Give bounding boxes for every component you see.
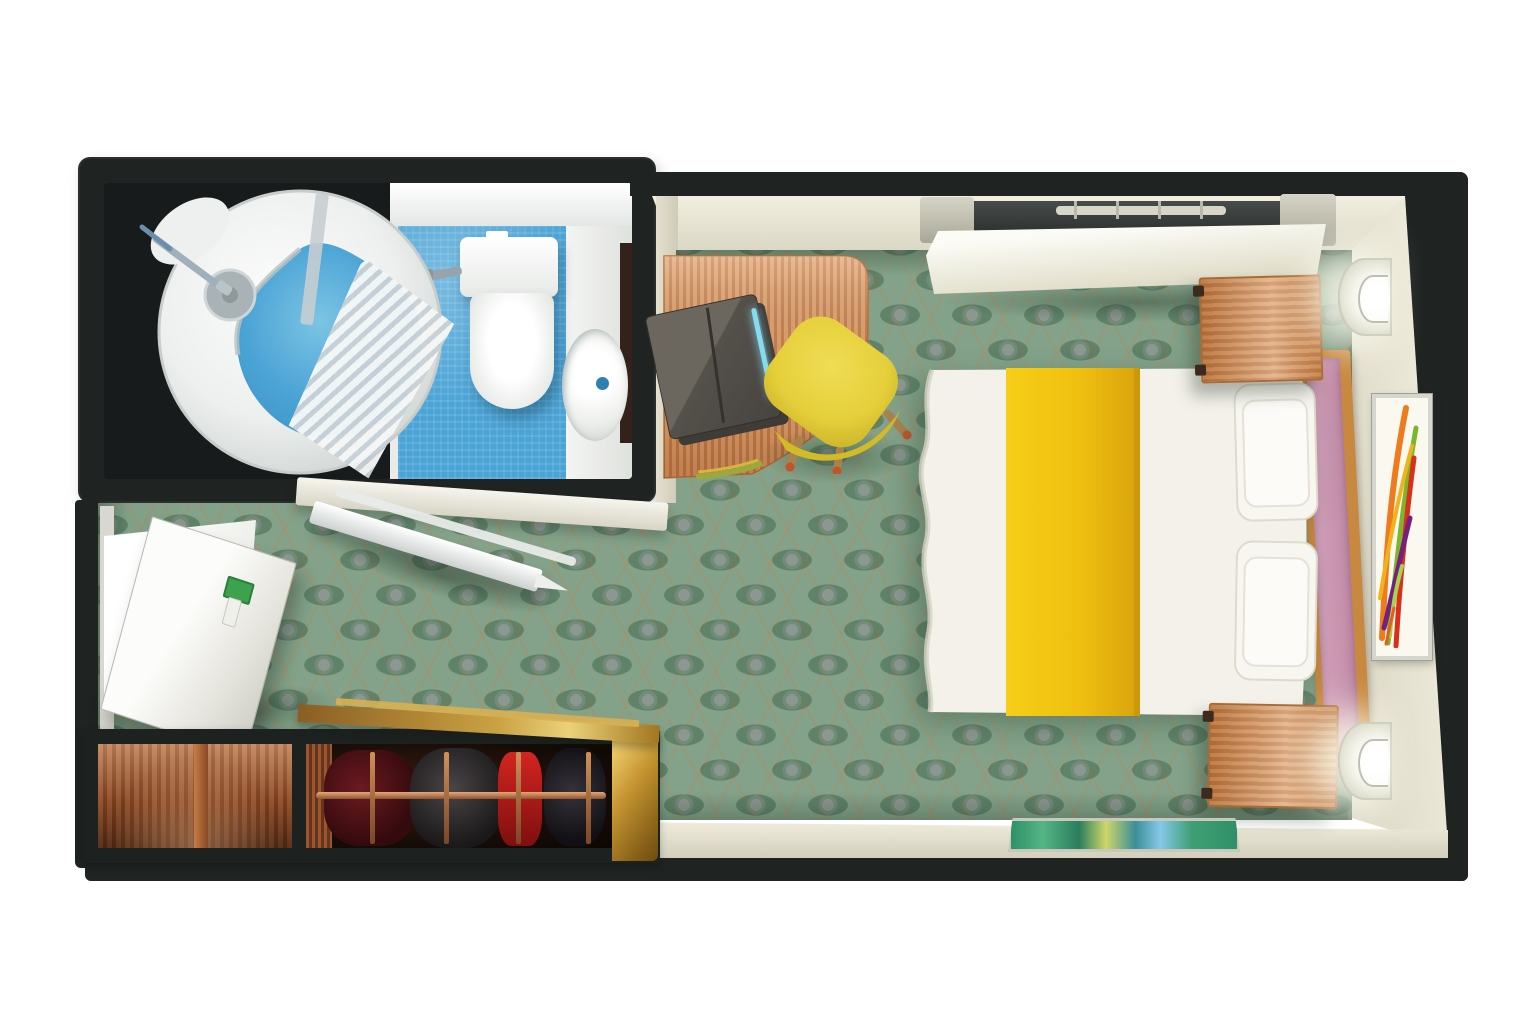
lamp-bulb-icon [1358,275,1388,323]
shelf-divider [194,744,208,848]
double-bed [898,358,1322,730]
top-wall [630,172,1468,196]
lamp-bulb-icon [1358,739,1388,787]
bathroom-interior [104,183,632,479]
nightstand-foot [1203,711,1214,722]
rail-tick [1074,201,1077,219]
hanger-icon [586,752,591,844]
key-card-tag [222,597,243,628]
rail-tick [1116,201,1119,219]
nightstand-bottom [1207,703,1339,809]
closet [83,729,660,863]
wall-art-bottom [1008,818,1240,852]
nightstand-top [1199,274,1324,383]
nightstand-foot [1195,364,1206,375]
bed-runner [1006,368,1140,716]
closet-hanging-compartment [306,744,612,848]
ac-rail [1056,206,1226,215]
pillow [1234,383,1318,521]
nightstand-sheen [1209,705,1337,807]
stateroom-floor-plan [0,0,1539,1026]
bathroom [78,157,656,503]
nightstand-foot [1193,285,1204,296]
wall-lamp-bottom [1338,722,1392,800]
lounge-chair [740,316,920,474]
toilet-bowl [470,293,554,409]
hanger-icon [444,752,449,844]
hanger-icon [516,752,521,844]
toilet-flush-plate [486,231,508,240]
hanging-rail [316,792,606,799]
nightstand-foot [1201,788,1212,799]
abstract-painting [1376,398,1420,648]
nightstand-sheen [1201,276,1322,381]
wall-lamp-top [1338,258,1392,336]
closet-end-cap [612,731,658,861]
rail-tick [1158,201,1161,219]
hanger-icon [370,752,375,844]
wall-art-right [1372,394,1432,660]
vanity-sink [562,329,628,441]
sink-drain [596,377,609,390]
toilet-tank [460,237,558,297]
pillow [1235,541,1317,680]
rail-tick [1200,201,1203,219]
closet-shelf-compartment [98,744,292,848]
